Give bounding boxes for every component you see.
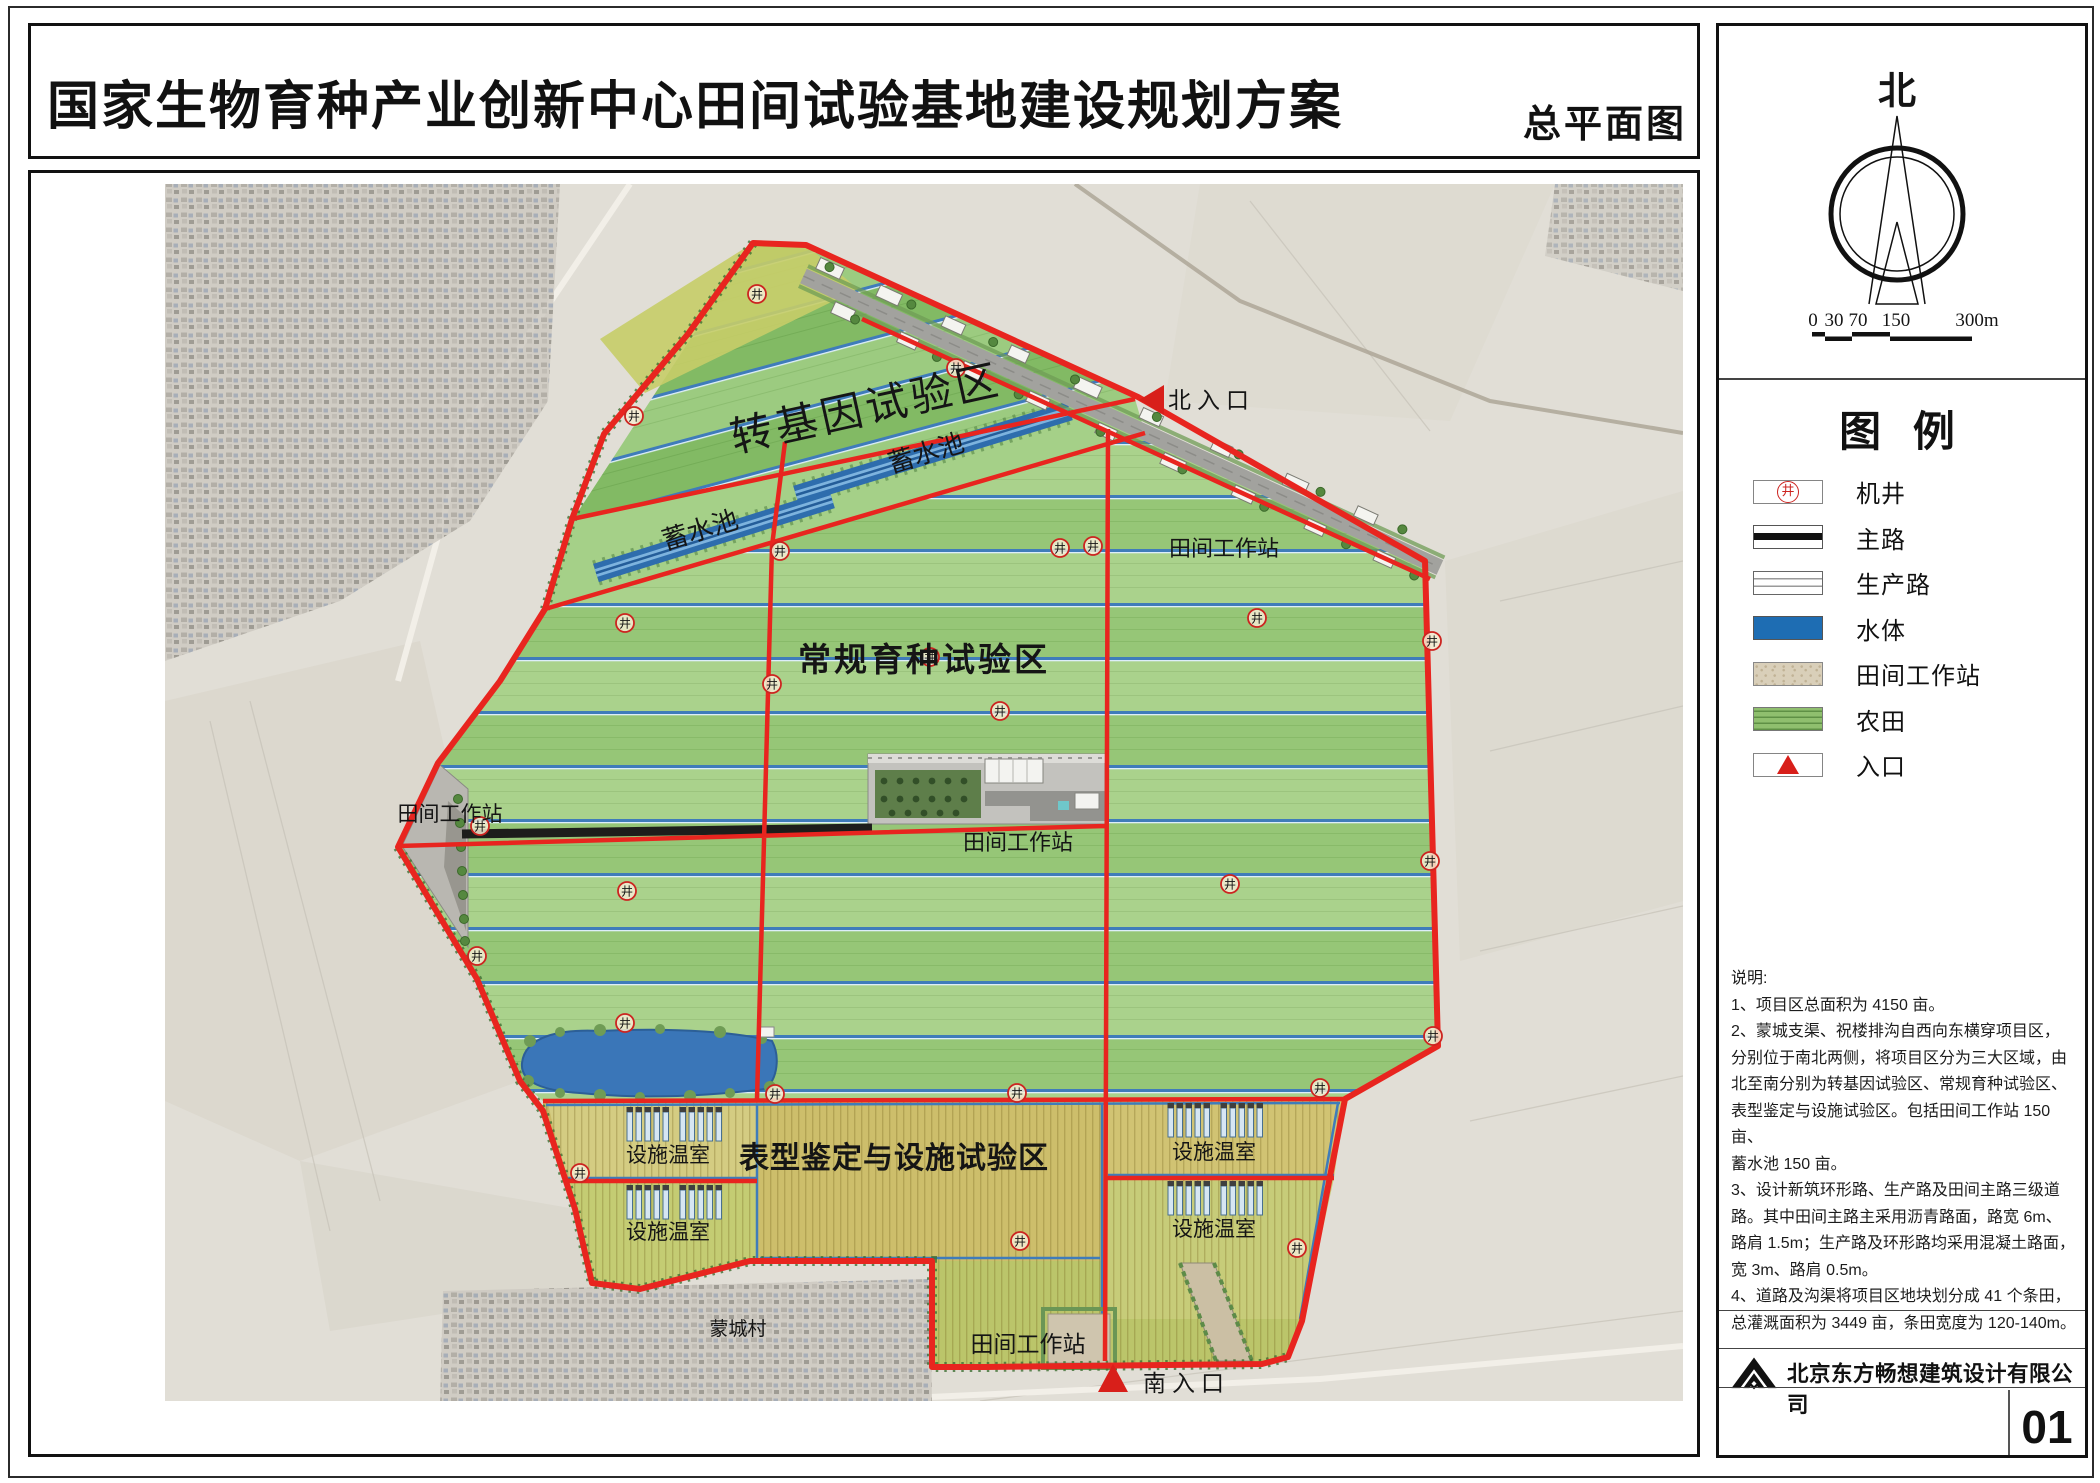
field-station-center-label: 田间工作站 <box>963 830 1073 855</box>
legend-label: 主路 <box>1856 520 1906 555</box>
divider-legend-top <box>1719 378 2085 380</box>
field-station-swatch <box>1753 662 1823 686</box>
well-icon: 井 <box>1777 481 1799 503</box>
note-line: 2、蒙城支渠、祝楼排沟自西向东横穿项目区， <box>1731 1019 2079 1046</box>
note-line: 蓄水池 150 亩。 <box>1731 1152 2079 1179</box>
entrance-swatch <box>1753 753 1823 777</box>
note-line: 1、项目区总面积为 4150 亩。 <box>1731 993 2079 1020</box>
greenhouse-label-ne: 设施温室 <box>1172 1140 1256 1164</box>
company-logo-icon <box>1727 1350 1781 1392</box>
scale-tick-150: 150 <box>1882 310 1911 331</box>
legend: 井 机井 主路 生产路 水体 田间工作站 农田 入口 <box>1753 469 2079 788</box>
title-block: 国家生物育种产业创新中心田间试验基地建设规划方案 总平面图 <box>28 23 1700 159</box>
field-station-west-label: 田间工作站 <box>398 802 503 826</box>
scale-tick-0: 0 <box>1808 310 1818 331</box>
note-line: 总灌溉面积为 3449 亩，条田宽度为 120-140m。 <box>1731 1311 2079 1338</box>
central-field-station <box>868 754 1105 824</box>
note-line: 北至南分别为转基因试验区、常规育种试验区、 <box>1731 1072 2079 1099</box>
greenhouse-label-nw: 设施温室 <box>626 1143 710 1167</box>
village-south <box>440 1279 932 1401</box>
main-road-swatch <box>1753 525 1823 549</box>
production-road-swatch <box>1753 571 1823 595</box>
note-line: 3、设计新筑环形路、生产路及田间主路三级道 <box>1731 1178 2079 1205</box>
right-sidebar: 北 0 30 70 150 300m 图 例 井 机井 主路 <box>1716 23 2088 1458</box>
village-label: 蒙城村 <box>709 1318 766 1340</box>
north-entrance-label: 北入口 <box>1168 388 1255 413</box>
field-station-north-label: 田间工作站 <box>1169 536 1279 561</box>
legend-label: 机井 <box>1856 474 1906 509</box>
well-swatch: 井 <box>1753 480 1823 504</box>
scale-tick-70: 70 <box>1849 310 1868 331</box>
divider-company-top <box>1719 1348 2085 1349</box>
note-line: 路肩 1.5m；生产路及环形路均采用混凝土路面， <box>1731 1231 2079 1258</box>
legend-label: 田间工作站 <box>1856 656 1981 691</box>
legend-heading: 图 例 <box>1719 398 2085 459</box>
divider-number-top <box>1719 1387 2085 1388</box>
south-entrance-label: 南入口 <box>1143 1371 1230 1396</box>
field-station-south-label: 田间工作站 <box>971 1332 1086 1357</box>
legend-label: 农田 <box>1856 702 1906 737</box>
zone-conventional-label: 常规育种试验区 <box>798 641 1050 679</box>
greenhouse-label-se: 设施温室 <box>1172 1217 1256 1241</box>
pond <box>522 1024 777 1102</box>
note-line: 宽 3m、路肩 0.5m。 <box>1731 1258 2079 1285</box>
legend-item-entrance: 入口 <box>1753 742 2079 788</box>
legend-item-farmland: 农田 <box>1753 697 2079 743</box>
scale-tick-30: 30 <box>1825 310 1844 331</box>
entrance-triangle-icon <box>1777 755 1799 774</box>
legend-item-main-road: 主路 <box>1753 515 2079 561</box>
north-label: 北 <box>1878 71 1916 113</box>
compass-needle <box>1869 116 1925 304</box>
note-line: 分别位于南北两侧，将项目区分为三大区域，由 <box>1731 1046 2079 1073</box>
scale-tick-300: 300m <box>1955 310 1999 331</box>
legend-item-well: 井 机井 <box>1753 469 2079 515</box>
note-line: 表型鉴定与设施试验区。包括田间工作站 150 亩、 <box>1731 1099 2079 1152</box>
page-title: 国家生物育种产业创新中心田间试验基地建设规划方案 <box>31 26 1697 139</box>
legend-label: 生产路 <box>1856 565 1931 600</box>
legend-label: 水体 <box>1856 611 1906 646</box>
water-swatch <box>1753 616 1823 640</box>
legend-item-water: 水体 <box>1753 606 2079 652</box>
sheet-number: 01 <box>2009 1400 2085 1454</box>
scale-bar: 0 30 70 150 300m <box>1808 310 1999 341</box>
legend-item-field-station: 田间工作站 <box>1753 651 2079 697</box>
site-plan-map: 井 <box>165 184 1683 1401</box>
legend-label: 入口 <box>1856 747 1906 782</box>
zone-phenotype-label: 表型鉴定与设施试验区 <box>739 1141 1049 1175</box>
note-line: 路。其中田间主路主采用沥青路面，路宽 6m、 <box>1731 1205 2079 1232</box>
farmland-swatch <box>1753 707 1823 731</box>
sheet-label: 总平面图 <box>1523 93 1687 148</box>
notes-panel: 说明: 1、项目区总面积为 4150 亩。 2、蒙城支渠、祝楼排沟自西向东横穿项… <box>1731 966 2079 1337</box>
map-panel: 井 <box>28 170 1700 1457</box>
notes-heading: 说明: <box>1731 966 2079 993</box>
north-arrow-and-scale: 北 0 30 70 150 300m <box>1719 46 2085 352</box>
note-line: 4、道路及沟渠将项目区地块划分成 41 个条田， <box>1731 1284 2079 1311</box>
company-row: 北京东方畅想建筑设计有限公司 <box>1719 1352 2085 1390</box>
greenhouse-label-sw: 设施温室 <box>626 1220 710 1244</box>
legend-item-production-road: 生产路 <box>1753 560 2079 606</box>
divider-notes-bottom <box>1719 1310 2085 1311</box>
